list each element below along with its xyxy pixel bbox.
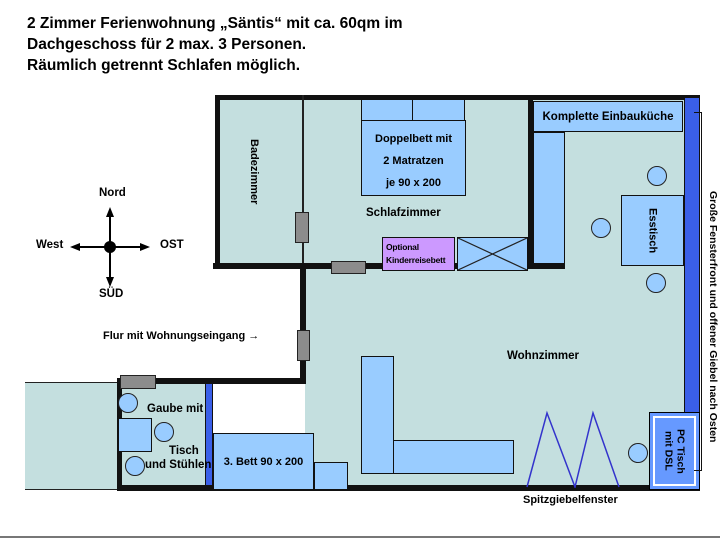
pc-desk-label: PC Tisch mit DSL (663, 418, 687, 484)
kitchen-counter (533, 132, 565, 264)
bathroom-label: Badezimmer (246, 132, 260, 212)
door-dormer (120, 375, 156, 389)
door-bedroom (331, 261, 366, 274)
double-bed-label-2: 2 Matratzen (362, 150, 465, 172)
slide-bottom-edge (0, 536, 720, 538)
pc-desk: PC Tisch mit DSL (649, 412, 700, 490)
dormer-chair-2 (154, 422, 174, 442)
door-bathroom (295, 212, 309, 243)
crib-label-2: Kinderreisebett (386, 254, 454, 267)
kitchen-unit: Komplette Einbauküche (533, 101, 683, 132)
compass-icon (62, 199, 158, 295)
gable-window-icon (520, 408, 625, 488)
dormer-label-3: und Stühlen (145, 459, 211, 471)
dining-chair-2 (591, 218, 611, 238)
wall-left (215, 95, 220, 266)
crib-label-1: Optional (386, 241, 454, 254)
page-title: 2 Zimmer Ferienwohnung „Säntis“ mit ca. … (27, 13, 403, 76)
bathroom-area (215, 95, 305, 266)
dormer-label-1: Gaube mit (147, 403, 203, 415)
compass-east-label: OST (160, 239, 184, 251)
nightstand (314, 462, 348, 490)
title-line-3: Räumlich getrennt Schlafen möglich. (27, 55, 403, 76)
compass-west-label: West (36, 239, 63, 251)
title-line-1: 2 Zimmer Ferienwohnung „Säntis“ mit ca. … (27, 13, 403, 34)
floor-plan-slide: 2 Zimmer Ferienwohnung „Säntis“ mit ca. … (0, 0, 720, 540)
window-extent-bracket (701, 112, 702, 471)
window-front-label: Große Fensterfront und offener Giebel na… (703, 152, 719, 482)
third-bed-label: 3. Bett 90 x 200 (224, 456, 304, 468)
bracket-tick-bottom (694, 470, 702, 471)
living-room-label: Wohnzimmer (507, 350, 579, 362)
bed-headboard-left (361, 99, 413, 121)
double-bed-label-1: Doppelbett mit (362, 128, 465, 150)
door-apartment-entrance (297, 330, 310, 361)
dining-chair-3 (646, 273, 666, 293)
dormer-label-2: Tisch (169, 445, 199, 457)
dining-table-label: Esstisch (647, 196, 659, 265)
bedroom-label: Schlafzimmer (366, 207, 441, 219)
compass-north-label: Nord (99, 187, 126, 199)
dormer-chair-3 (125, 456, 145, 476)
adjacent-attic-strip (25, 382, 117, 490)
double-bed: Doppelbett mit 2 Matratzen je 90 x 200 (361, 120, 466, 196)
gable-window-label: Spitzgiebelfenster (523, 494, 618, 506)
pc-desk-label-2: mit DSL (663, 418, 675, 484)
bed-headboard-right (412, 99, 465, 121)
sofa-horizontal (393, 440, 514, 474)
title-line-2: Dachgeschoss für 2 max. 3 Personen. (27, 34, 403, 55)
dormer-table (118, 418, 152, 452)
double-bed-label-3: je 90 x 200 (362, 172, 465, 194)
dormer-chair-1 (118, 393, 138, 413)
wardrobe-crossed (457, 237, 528, 271)
pc-desk-inner: PC Tisch mit DSL (653, 416, 696, 486)
hall-label: Flur mit Wohnungseingang → (103, 330, 259, 342)
dining-table: Esstisch (621, 195, 684, 266)
kitchen-label: Komplette Einbauküche (543, 111, 674, 123)
bracket-tick-top (694, 112, 702, 113)
wardrobe-cross-icon (458, 238, 527, 270)
pc-desk-label-1: PC Tisch (675, 418, 687, 484)
wall-hall-right (300, 263, 306, 384)
travel-crib: Optional Kinderreisebett (382, 237, 455, 271)
dining-chair-1 (647, 166, 667, 186)
compass-south-label: SÜD (99, 288, 123, 300)
sofa-vertical (361, 356, 394, 474)
pc-chair (628, 443, 648, 463)
third-bed: 3. Bett 90 x 200 (213, 433, 314, 490)
